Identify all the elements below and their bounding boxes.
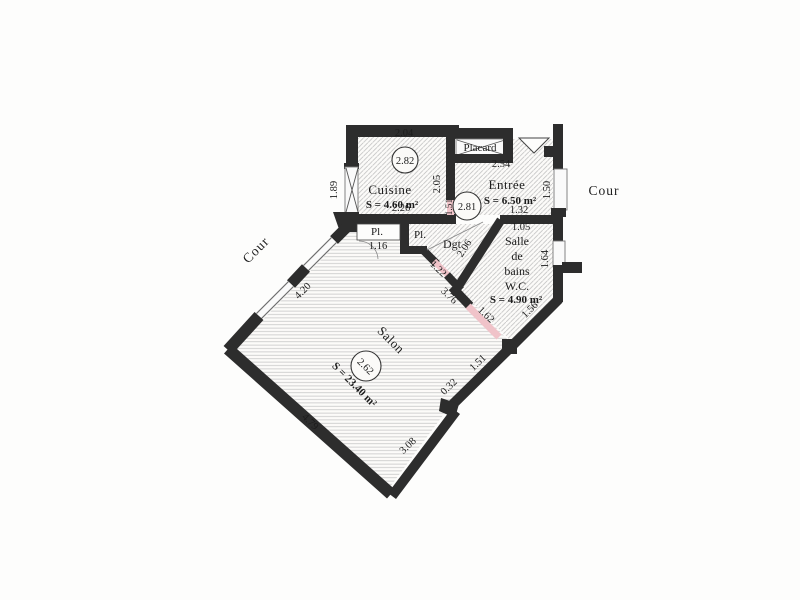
wall-cuisine-entree-divider	[446, 137, 455, 200]
wall-protrusion-right	[562, 262, 582, 273]
dim-1.50: 1.50	[542, 181, 553, 199]
placard-label: Placard	[464, 142, 497, 154]
dim-1.16: 1.16	[369, 241, 387, 252]
cuisine-label: Cuisine	[368, 182, 411, 197]
bains-label-3: bains	[504, 264, 530, 278]
entree-window	[554, 169, 567, 210]
pl-dgt-label: Pl.	[414, 229, 426, 241]
bains-label-2: de	[511, 249, 522, 263]
pl-salon-label: Pl.	[371, 226, 383, 238]
bains-label-1: Salle	[505, 234, 529, 248]
wall-cuisine-bottom	[346, 214, 456, 224]
dim-2.26: 2.26	[392, 203, 410, 214]
dim-2.04: 2.04	[395, 128, 414, 139]
entree-label: Entrée	[489, 177, 526, 192]
dim-2.54: 2.54	[492, 159, 511, 170]
dim-1.32: 1.32	[510, 205, 528, 216]
wall-right-upper	[553, 124, 563, 170]
dim-1.89: 1.89	[329, 181, 340, 199]
wall-bains-right-upper	[553, 216, 563, 242]
dim-1.64: 1.64	[540, 249, 551, 268]
wall-right-t-stub	[544, 146, 553, 157]
cuisine-ceiling-value: 2.82	[396, 156, 414, 167]
dim-1.05: 1.05	[512, 222, 530, 233]
entree-ceiling-value: 2.81	[458, 202, 476, 213]
dim-1.51-door: 1.51	[445, 198, 455, 215]
dim-2.05: 2.05	[432, 175, 443, 193]
bains-label-4: W.C.	[505, 279, 529, 293]
wall-entree-bottom	[500, 215, 562, 224]
floor-plan: 2.82 2.81 2.62 Cuisine S = 4.60 m² Entré…	[0, 0, 800, 600]
cour-right-label: Cour	[589, 183, 620, 198]
